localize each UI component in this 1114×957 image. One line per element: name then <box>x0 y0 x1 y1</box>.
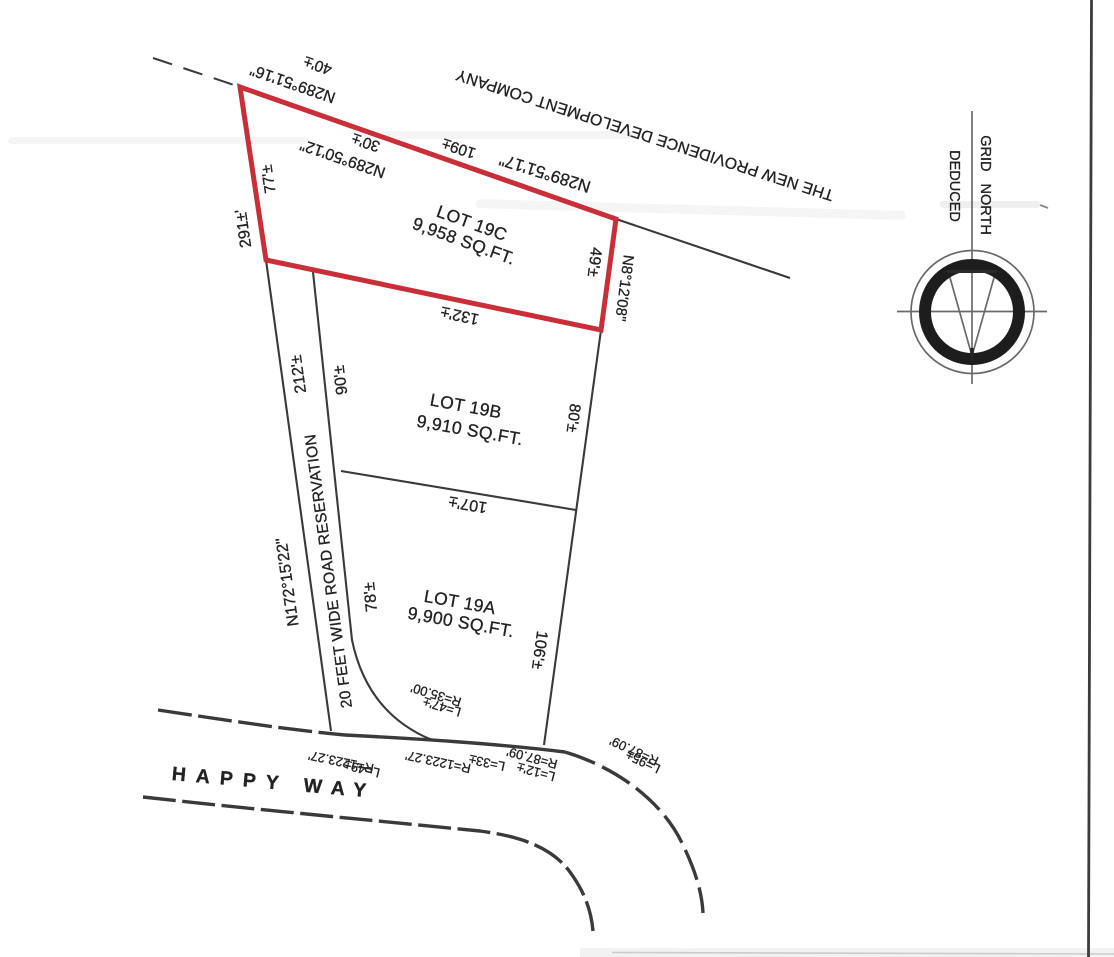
svg-text:GRID NORTH: GRID NORTH <box>977 135 993 235</box>
svg-text:78'±: 78'± <box>361 581 381 612</box>
svg-text:DEDUCED: DEDUCED <box>946 150 962 222</box>
svg-text:49'±: 49'± <box>584 246 605 278</box>
